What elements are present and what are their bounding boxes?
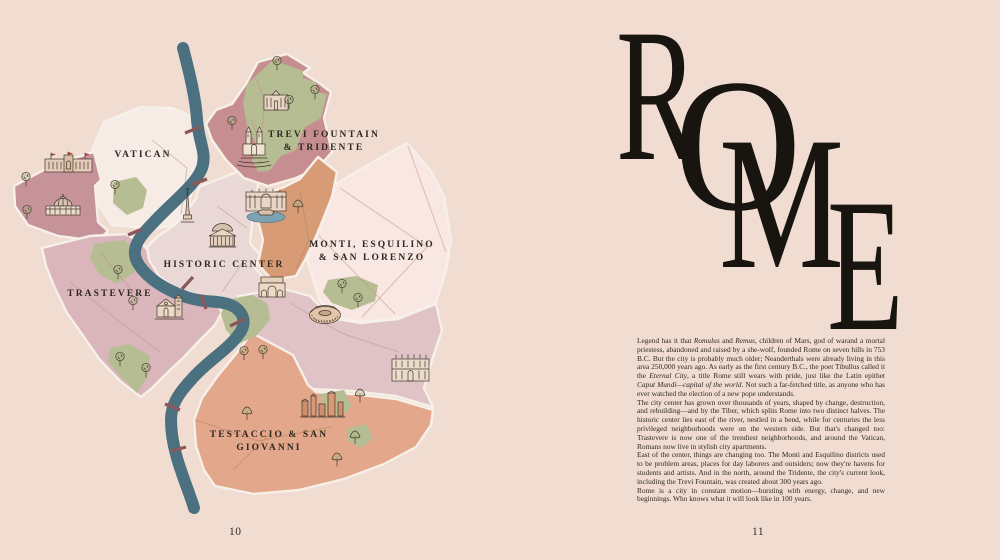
paragraph: Legend has it that Romulus and Remus, ch…: [637, 337, 885, 399]
label-vatican: VATICAN: [114, 150, 171, 160]
arch-of-constantine-icon: [259, 277, 285, 297]
page-number-right: 11: [752, 526, 764, 538]
left-page: VATICAN TREVI FOUNTAIN & TRIDENTE HISTOR…: [0, 0, 500, 560]
intro-text: Legend has it that Romulus and Remus, ch…: [637, 337, 885, 504]
paragraph: Rome is a city in constant motion—bursti…: [637, 487, 885, 505]
vatican-museums-icon: [45, 152, 92, 172]
book-spread: VATICAN TREVI FOUNTAIN & TRIDENTE HISTOR…: [0, 0, 1000, 560]
label-monti-line2: & SAN LORENZO: [319, 253, 425, 263]
title-letter-m: M: [719, 109, 844, 299]
trevi-fountain-icon: [246, 189, 286, 223]
label-testaccio-line2: GIOVANNI: [236, 443, 301, 453]
label-trevi-line2: & TRIDENTE: [284, 143, 365, 153]
paragraph: East of the center, things are changing …: [637, 451, 885, 486]
rome-map: VATICAN TREVI FOUNTAIN & TRIDENTE HISTOR…: [0, 0, 500, 560]
label-monti-line1: MONTI, ESQUILINO: [309, 240, 434, 250]
label-trastevere: TRASTEVERE: [67, 289, 152, 299]
paragraph: The city center has grown over thousands…: [637, 399, 885, 452]
page-number-left: 10: [229, 526, 242, 538]
label-testaccio-line1: TESTACCIO & SAN: [210, 430, 328, 440]
region-vatican: [87, 107, 200, 229]
label-trevi-line1: TREVI FOUNTAIN: [268, 130, 380, 140]
label-historic-center: HISTORIC CENTER: [164, 260, 285, 270]
right-page: R O M E Legend has it that Romulus and R…: [500, 0, 1000, 560]
title-letter-e: E: [827, 171, 904, 361]
